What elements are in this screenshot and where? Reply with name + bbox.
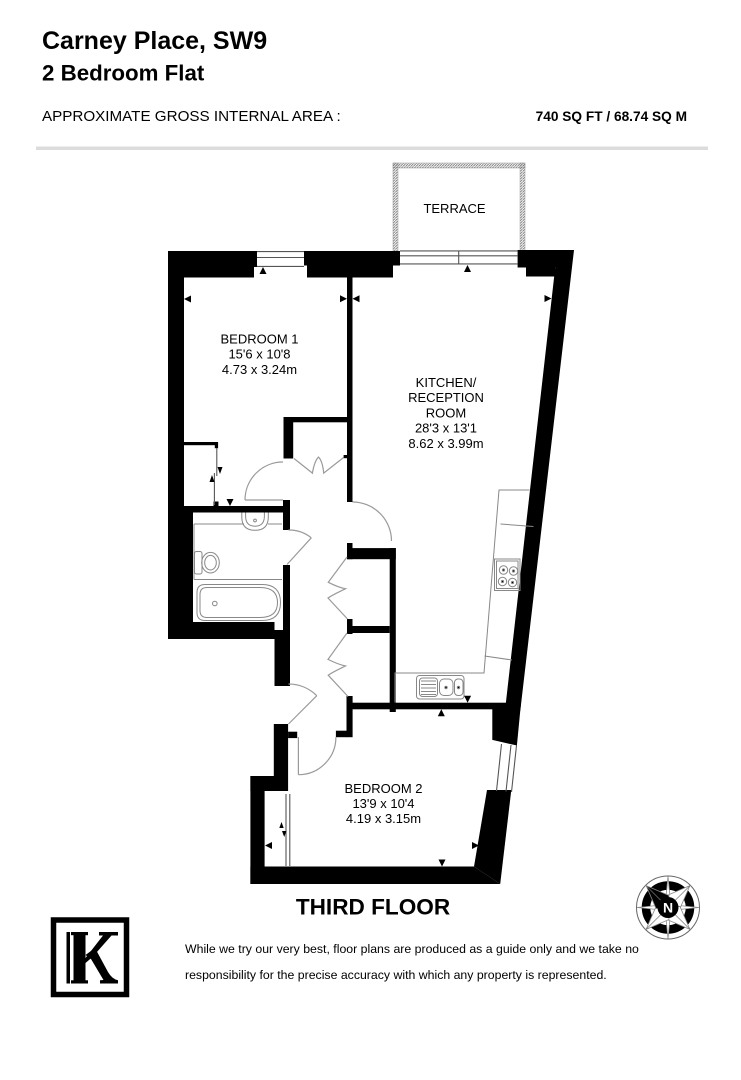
svg-text:TERRACE: TERRACE — [423, 201, 485, 216]
svg-text:responsibility for the precise: responsibility for the precise accuracy … — [185, 968, 607, 982]
svg-text:15'6 x 10'8: 15'6 x 10'8 — [228, 347, 290, 362]
svg-text:28'3 x 13'1: 28'3 x 13'1 — [415, 421, 477, 436]
svg-text:Carney Place, SW9: Carney Place, SW9 — [42, 27, 267, 55]
svg-text:4.19 x 3.15m: 4.19 x 3.15m — [346, 811, 421, 826]
svg-text:APPROXIMATE GROSS INTERNAL ARE: APPROXIMATE GROSS INTERNAL AREA : — [42, 108, 341, 125]
svg-text:BEDROOM 2: BEDROOM 2 — [344, 781, 422, 796]
svg-text:N: N — [663, 900, 673, 916]
svg-text:THIRD FLOOR: THIRD FLOOR — [296, 895, 450, 920]
svg-text:KITCHEN/: KITCHEN/ — [416, 375, 477, 390]
svg-text:8.62 x 3.99m: 8.62 x 3.99m — [408, 436, 483, 451]
svg-text:BEDROOM 1: BEDROOM 1 — [220, 331, 298, 346]
svg-text:2 Bedroom Flat: 2 Bedroom Flat — [42, 61, 205, 86]
svg-text:13'9 x 10'4: 13'9 x 10'4 — [352, 796, 414, 811]
svg-text:RECEPTION: RECEPTION — [408, 390, 484, 405]
svg-text:While we try our very best, fl: While we try our very best, floor plans … — [185, 942, 639, 956]
svg-text:740 SQ FT / 68.74 SQ M: 740 SQ FT / 68.74 SQ M — [536, 109, 687, 124]
svg-text:ROOM: ROOM — [426, 405, 466, 420]
svg-text:4.73 x 3.24m: 4.73 x 3.24m — [222, 362, 297, 377]
